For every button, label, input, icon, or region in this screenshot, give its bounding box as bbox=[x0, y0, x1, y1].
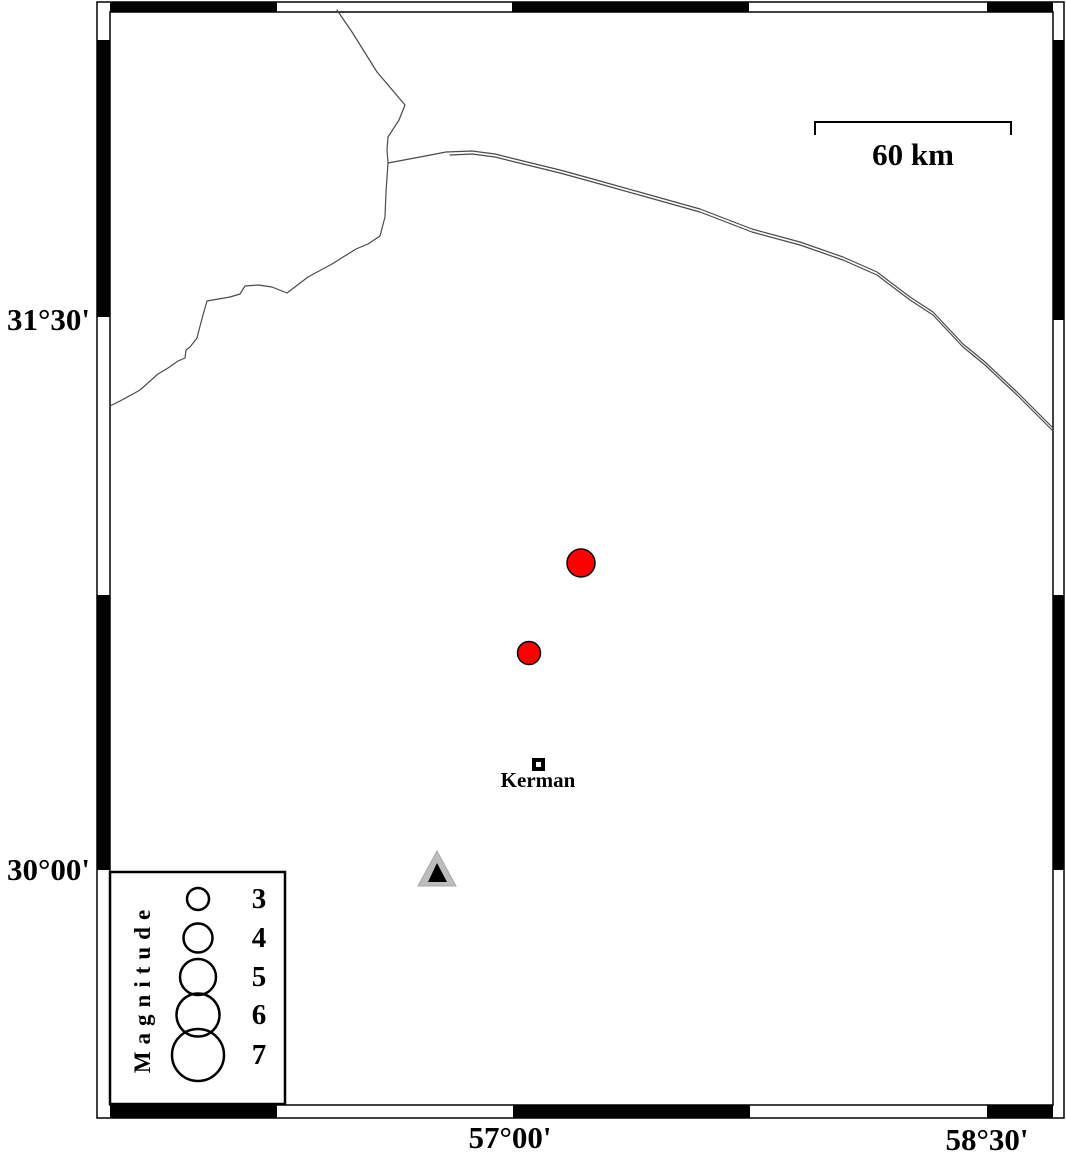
legend-entry-label-6: 6 bbox=[237, 999, 281, 1031]
frame-band-right-2 bbox=[1053, 595, 1064, 870]
y-axis-tick-label-31-30: 31°30' bbox=[0, 303, 90, 337]
legend-entry-label-7: 7 bbox=[237, 1039, 281, 1071]
frame-band-top-3 bbox=[987, 3, 1053, 13]
legend-entry-label-3: 3 bbox=[237, 883, 281, 915]
map-canvas bbox=[0, 0, 1066, 1155]
frame-band-top-2 bbox=[512, 3, 749, 13]
frame-band-right-1 bbox=[1053, 40, 1064, 320]
legend-entry-label-4: 4 bbox=[237, 922, 281, 954]
frame-band-bottom-3 bbox=[987, 1105, 1053, 1118]
earthquake-layer bbox=[518, 549, 596, 665]
road-southwest bbox=[110, 236, 380, 406]
seismicity-map-figure: 31°30' 30°00' 57°00' 58°30' 60 km Kerman… bbox=[0, 0, 1066, 1155]
road-north bbox=[337, 10, 405, 236]
y-axis-tick-label-30-00: 30°00' bbox=[0, 853, 90, 887]
frame-band-left-1 bbox=[98, 40, 110, 317]
city-label-kerman: Kerman bbox=[458, 768, 618, 792]
road-east-upper bbox=[388, 151, 1053, 428]
frame-band-bottom-1 bbox=[110, 1105, 277, 1118]
road-lines bbox=[110, 10, 1053, 431]
frame-band-bottom-2 bbox=[513, 1105, 750, 1118]
station-marker bbox=[418, 851, 456, 886]
scale-bar-bracket bbox=[815, 122, 1011, 135]
earthquake-marker-1 bbox=[567, 549, 595, 577]
x-axis-tick-label-57-00: 57°00' bbox=[430, 1121, 590, 1155]
frame-band-top-1 bbox=[110, 3, 277, 13]
legend-title: Magnitude bbox=[130, 903, 156, 1073]
earthquake-marker-2 bbox=[518, 642, 541, 665]
frame-band-left-2 bbox=[98, 595, 110, 870]
legend-entry-label-5: 5 bbox=[237, 961, 281, 993]
x-axis-tick-label-58-30: 58°30' bbox=[907, 1123, 1066, 1155]
road-east-lower bbox=[450, 154, 1053, 431]
scale-bar-label: 60 km bbox=[813, 138, 1013, 172]
